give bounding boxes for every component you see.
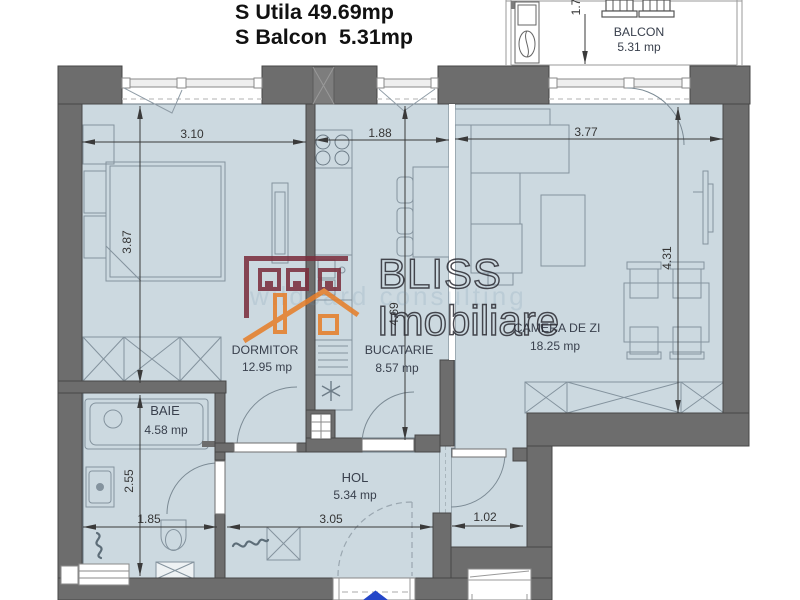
svg-text:3.10: 3.10 xyxy=(180,127,204,141)
svg-text:3.77: 3.77 xyxy=(574,125,598,139)
svg-text:4.31: 4.31 xyxy=(660,246,674,270)
svg-text:5.31 mp: 5.31 mp xyxy=(617,40,661,54)
svg-text:3.87: 3.87 xyxy=(120,230,134,254)
svg-text:1.88: 1.88 xyxy=(368,126,392,140)
svg-text:5.34 mp: 5.34 mp xyxy=(333,488,377,502)
svg-text:Imobiliare: Imobiliare xyxy=(377,297,559,344)
svg-text:DORMITOR: DORMITOR xyxy=(232,343,299,357)
svg-text:4.58 mp: 4.58 mp xyxy=(144,423,188,437)
svg-text:BLISS: BLISS xyxy=(378,250,502,297)
svg-text:2.55: 2.55 xyxy=(122,469,136,493)
svg-text:BAIE: BAIE xyxy=(150,403,180,418)
svg-text:S Utila 49.69mp: S Utila 49.69mp xyxy=(235,0,394,24)
svg-text:BALCON: BALCON xyxy=(614,25,665,39)
svg-text:HOL: HOL xyxy=(342,470,369,485)
svg-text:S Balcon 5.31mp: S Balcon 5.31mp xyxy=(235,25,413,49)
svg-text:12.95 mp: 12.95 mp xyxy=(242,360,292,374)
svg-text:1.02: 1.02 xyxy=(473,510,497,524)
svg-text:BUCATARIE: BUCATARIE xyxy=(365,343,434,357)
svg-text:1.85: 1.85 xyxy=(137,512,161,526)
svg-text:1.7: 1.7 xyxy=(569,0,583,15)
svg-text:8.57 mp: 8.57 mp xyxy=(375,361,419,375)
svg-text:3.05: 3.05 xyxy=(319,512,343,526)
